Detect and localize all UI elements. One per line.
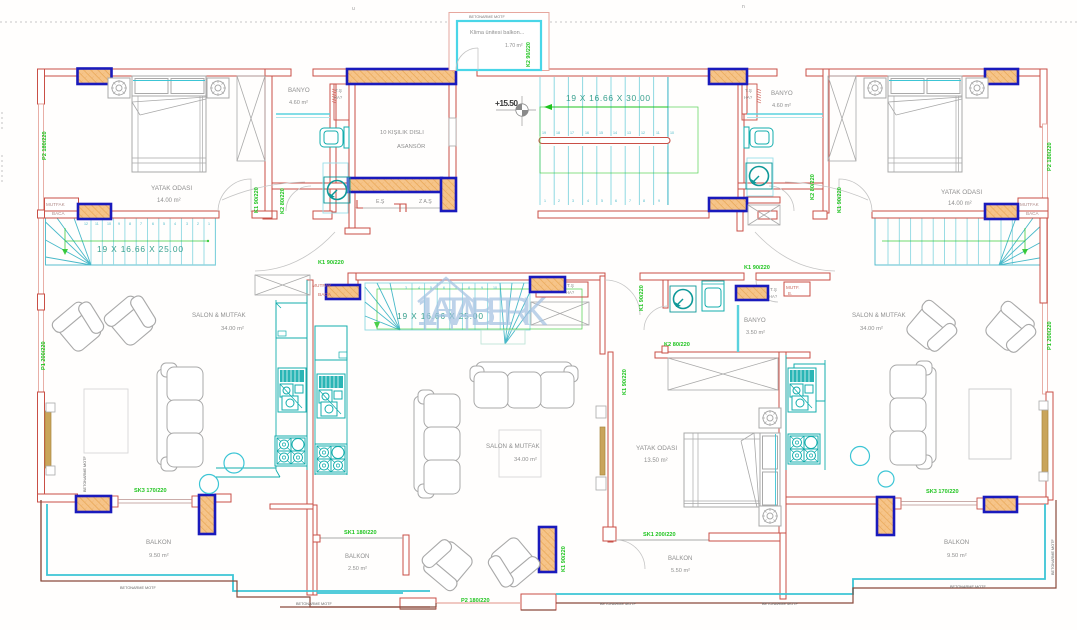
svg-text:SALON & MUTFAK: SALON & MUTFAK bbox=[852, 312, 907, 319]
svg-text:K1 90/220: K1 90/220 bbox=[837, 187, 843, 213]
svg-text:P2 180/220: P2 180/220 bbox=[1047, 142, 1053, 171]
svg-text:Z A.Ş: Z A.Ş bbox=[419, 199, 432, 205]
svg-text:SK1 180/220: SK1 180/220 bbox=[344, 530, 377, 536]
svg-text:4.60 m²: 4.60 m² bbox=[772, 103, 791, 109]
svg-text:HA?: HA? bbox=[769, 294, 778, 299]
svg-text:34.00 m²: 34.00 m² bbox=[514, 457, 537, 463]
svg-text:1: 1 bbox=[208, 222, 210, 226]
svg-text:BETONARME MOTF: BETONARME MOTF bbox=[296, 602, 332, 606]
svg-text:HA?: HA? bbox=[334, 95, 343, 100]
svg-text:P2 180/220: P2 180/220 bbox=[461, 598, 490, 604]
svg-text:K2 90/220: K2 90/220 bbox=[526, 42, 532, 67]
svg-text:T.Ş: T.Ş bbox=[567, 283, 574, 289]
svg-text:MUTFAK: MUTFAK bbox=[46, 202, 66, 207]
svg-text:6: 6 bbox=[152, 222, 154, 226]
svg-text:19: 19 bbox=[542, 131, 546, 135]
svg-text:B.: B. bbox=[788, 291, 792, 296]
svg-text:3.50 m²: 3.50 m² bbox=[746, 330, 765, 336]
svg-text:E.Ş: E.Ş bbox=[376, 199, 385, 205]
svg-text:5: 5 bbox=[163, 222, 165, 226]
svg-text:8: 8 bbox=[129, 222, 131, 226]
svg-text:K1 90/220: K1 90/220 bbox=[622, 369, 628, 395]
svg-text:10: 10 bbox=[670, 131, 674, 135]
svg-text:9: 9 bbox=[658, 199, 660, 203]
svg-text:2.50 m²: 2.50 m² bbox=[348, 566, 367, 572]
svg-text:BALKON: BALKON bbox=[668, 556, 692, 562]
svg-text:34.00 m²: 34.00 m² bbox=[860, 326, 883, 332]
svg-text:ASANSÖR: ASANSÖR bbox=[397, 143, 425, 150]
svg-text:BETONARME MOTF: BETONARME MOTF bbox=[469, 15, 505, 19]
svg-text:K1 90/220: K1 90/220 bbox=[639, 285, 645, 311]
svg-text:SK3 170/220: SK3 170/220 bbox=[926, 489, 959, 495]
svg-text:19 X 16.66 X 25.00: 19 X 16.66 X 25.00 bbox=[97, 244, 183, 254]
svg-text:K1 90/220: K1 90/220 bbox=[744, 265, 770, 271]
svg-text:1.70 m²: 1.70 m² bbox=[505, 43, 523, 49]
svg-text:13: 13 bbox=[627, 131, 631, 135]
svg-text:14.00 m²: 14.00 m² bbox=[157, 198, 181, 204]
svg-text:11: 11 bbox=[656, 131, 660, 135]
svg-text:BETONARME MOTF: BETONARME MOTF bbox=[600, 602, 636, 606]
svg-text:P1 200/220: P1 200/220 bbox=[1047, 321, 1053, 350]
svg-text:HA?: HA? bbox=[744, 95, 753, 100]
svg-text:BALKON: BALKON bbox=[345, 554, 369, 560]
svg-text:14: 14 bbox=[613, 131, 617, 135]
svg-text:16: 16 bbox=[585, 131, 589, 135]
svg-text:5: 5 bbox=[601, 199, 603, 203]
svg-text:14.00 m²: 14.00 m² bbox=[948, 201, 972, 207]
svg-text:BALKON: BALKON bbox=[146, 539, 171, 546]
svg-text:1ATABERK: 1ATABERK bbox=[416, 290, 548, 334]
svg-text:BACA: BACA bbox=[318, 292, 332, 298]
svg-text:9.50 m²: 9.50 m² bbox=[149, 553, 169, 559]
svg-text:1: 1 bbox=[544, 199, 546, 203]
svg-text:BANYO: BANYO bbox=[771, 90, 793, 97]
svg-text:K1 90/220: K1 90/220 bbox=[254, 187, 260, 213]
svg-text:MUTF.: MUTF. bbox=[786, 285, 800, 290]
svg-text:10 KIŞILIK DISLI: 10 KIŞILIK DISLI bbox=[380, 130, 424, 136]
svg-text:12: 12 bbox=[641, 131, 645, 135]
svg-text:BACA: BACA bbox=[1026, 211, 1039, 216]
svg-text:2: 2 bbox=[558, 199, 560, 203]
svg-text:BANYO: BANYO bbox=[288, 87, 310, 94]
svg-text:+15.50: +15.50 bbox=[495, 98, 518, 108]
svg-text:4.60 m²: 4.60 m² bbox=[289, 100, 308, 106]
svg-text:K2 80/220: K2 80/220 bbox=[280, 188, 286, 214]
svg-text:6: 6 bbox=[615, 199, 617, 203]
svg-text:17: 17 bbox=[570, 131, 574, 135]
svg-text:SALON & MUTFAK: SALON & MUTFAK bbox=[486, 443, 541, 450]
svg-text:19 X 16.66 X 30.00: 19 X 16.66 X 30.00 bbox=[566, 93, 650, 103]
svg-text:BANYO: BANYO bbox=[744, 317, 766, 324]
svg-text:3: 3 bbox=[186, 222, 188, 226]
svg-text:BETONARME MOTF: BETONARME MOTF bbox=[120, 586, 156, 590]
svg-text:BETONARME MOTF: BETONARME MOTF bbox=[950, 585, 986, 589]
svg-text:3: 3 bbox=[405, 286, 407, 290]
svg-text:K1 90/220: K1 90/220 bbox=[318, 260, 344, 266]
svg-text:9: 9 bbox=[118, 222, 120, 226]
svg-text:2: 2 bbox=[197, 222, 199, 226]
svg-text:YATAK ODASI: YATAK ODASI bbox=[636, 445, 677, 452]
svg-text:BETONARME MOTF: BETONARME MOTF bbox=[1051, 539, 1055, 575]
svg-text:YATAK ODASI: YATAK ODASI bbox=[941, 189, 982, 196]
svg-text:7: 7 bbox=[629, 199, 631, 203]
svg-text:12: 12 bbox=[84, 222, 88, 226]
svg-text:SK3 170/220: SK3 170/220 bbox=[134, 488, 167, 494]
svg-text:T.Ş: T.Ş bbox=[770, 287, 777, 293]
svg-text:9.50 m²: 9.50 m² bbox=[947, 553, 967, 559]
svg-text:K2 80/220: K2 80/220 bbox=[664, 342, 690, 348]
svg-text:BALKON: BALKON bbox=[944, 539, 969, 546]
svg-text:T.Ş: T.Ş bbox=[335, 88, 342, 94]
svg-text:18: 18 bbox=[556, 131, 560, 135]
svg-text:K1 90/220: K1 90/220 bbox=[561, 546, 567, 572]
svg-text:K2 80/220: K2 80/220 bbox=[810, 174, 816, 200]
svg-text:8: 8 bbox=[643, 199, 645, 203]
svg-text:Klima ünitesi balkon...: Klima ünitesi balkon... bbox=[470, 30, 525, 36]
svg-text:10: 10 bbox=[107, 222, 111, 226]
svg-text:15: 15 bbox=[599, 131, 603, 135]
svg-text:4: 4 bbox=[174, 222, 176, 226]
svg-text:7: 7 bbox=[140, 222, 142, 226]
svg-text:MUTFAK: MUTFAK bbox=[312, 283, 332, 289]
svg-text:HA?: HA? bbox=[566, 290, 575, 295]
svg-text:T.Ş: T.Ş bbox=[745, 88, 752, 94]
svg-text:5.50 m²: 5.50 m² bbox=[671, 568, 690, 574]
svg-text:SK1 200/220: SK1 200/220 bbox=[643, 532, 676, 538]
svg-text:SALON & MUTFAK: SALON & MUTFAK bbox=[192, 312, 247, 319]
svg-text:P1 200/220: P1 200/220 bbox=[41, 341, 47, 370]
svg-text:u: u bbox=[352, 6, 355, 12]
svg-text:4: 4 bbox=[587, 199, 589, 203]
svg-text:11: 11 bbox=[95, 222, 99, 226]
svg-text:BACA: BACA bbox=[52, 211, 65, 216]
svg-text:P2 180/220: P2 180/220 bbox=[42, 131, 48, 160]
svg-text:n: n bbox=[742, 4, 745, 10]
svg-text:3: 3 bbox=[572, 199, 574, 203]
svg-text:34.00 m²: 34.00 m² bbox=[221, 326, 244, 332]
svg-text:BETONARME MOTF: BETONARME MOTF bbox=[83, 456, 87, 492]
svg-text:BETONARME MOTF: BETONARME MOTF bbox=[762, 602, 798, 606]
svg-text:YATAK ODASI: YATAK ODASI bbox=[151, 185, 192, 192]
svg-text:13.50 m²: 13.50 m² bbox=[644, 458, 668, 464]
svg-text:MUTFAK: MUTFAK bbox=[1020, 202, 1040, 207]
